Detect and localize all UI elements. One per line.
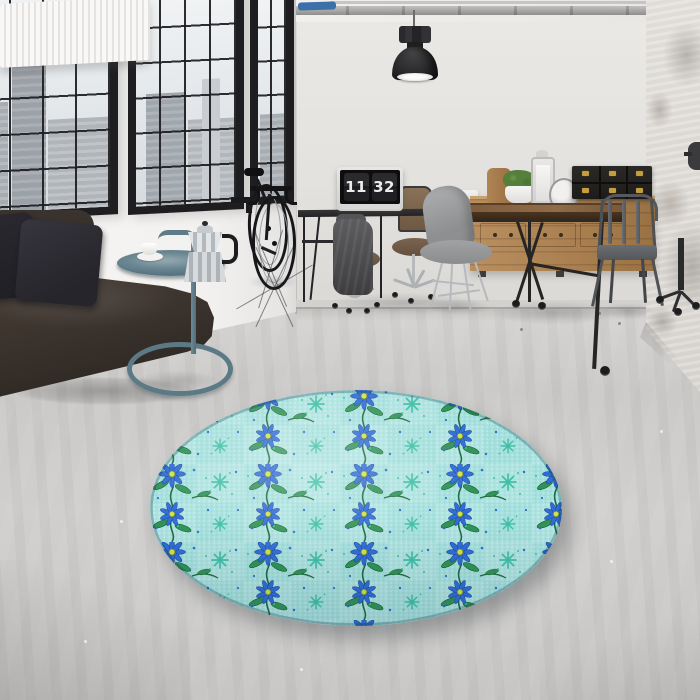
moka-pot-knob — [202, 221, 208, 226]
caster-wheel — [332, 303, 338, 309]
drawer-knob — [509, 233, 513, 237]
dining-table-edge — [456, 212, 622, 219]
bike-front-wheel — [252, 196, 296, 290]
chair-shadow — [586, 300, 668, 322]
brass-clasp — [609, 171, 616, 176]
office-chair-pole — [678, 238, 684, 290]
floor-speck — [300, 668, 303, 671]
desk-leg — [380, 214, 382, 298]
caster-wheel — [374, 302, 380, 308]
lantern-glass — [536, 165, 550, 201]
caster-wheel — [364, 308, 370, 314]
chair-shadow — [414, 296, 502, 318]
table-caster — [600, 366, 610, 376]
brass-clasp — [636, 188, 643, 193]
brass-clasp — [582, 188, 589, 193]
desk-leg — [303, 214, 305, 302]
metal-chair-slat — [608, 200, 612, 244]
side-table-loop-base — [127, 342, 233, 396]
ceiling-pipe-thin — [330, 1, 700, 4]
shell-chair-seat — [420, 240, 492, 264]
metal-chair-slat — [622, 200, 626, 244]
rug-pattern — [150, 390, 562, 626]
floor-speck — [660, 430, 663, 433]
brass-clasp — [636, 171, 643, 176]
bike-drop-bar — [285, 188, 297, 205]
sofa-pillow — [15, 219, 104, 308]
caster-wheel — [656, 296, 664, 304]
drawer-knob — [593, 233, 597, 237]
wall-lamp-arm — [684, 152, 692, 156]
metal-chair-seat — [597, 245, 657, 260]
table-caster — [538, 302, 546, 310]
drawer-knob — [543, 233, 547, 237]
draped-coat — [333, 219, 373, 295]
flip-clock-minutes: 32 — [372, 173, 397, 201]
window-muntins — [258, 0, 286, 197]
monitor-screen: 11 32 — [340, 170, 400, 204]
moka-pot-base — [184, 252, 226, 282]
lamp-fixture — [399, 26, 431, 43]
monitor-chin — [340, 204, 400, 209]
moka-pot-lid — [197, 225, 213, 233]
moka-pot-handle — [222, 234, 238, 264]
floor-speck — [84, 640, 87, 643]
trunk-divider — [599, 166, 601, 199]
pipe-valve — [298, 1, 336, 10]
caster-wheel — [346, 308, 352, 314]
metal-chair-slat — [636, 200, 640, 244]
ceiling-pipe — [290, 6, 700, 15]
caster-wheel — [674, 308, 682, 316]
coffee-cup — [142, 243, 157, 255]
lamp-rim — [397, 73, 433, 81]
radiator — [0, 0, 150, 68]
floor-speck — [120, 520, 123, 523]
flip-clock-hours: 11 — [344, 173, 369, 201]
monitor: 11 32 — [337, 167, 403, 211]
drawer-knob — [493, 233, 497, 237]
wall-lamp — [688, 142, 700, 170]
caster-wheel — [392, 292, 398, 298]
brass-clasp — [582, 171, 589, 176]
bike-saddle — [244, 168, 264, 176]
dining-table-band — [456, 219, 622, 222]
sideboard-foot — [556, 271, 564, 277]
caster-wheel — [692, 302, 700, 310]
drawer-knob — [559, 233, 563, 237]
loft-room-photo: 11 32 — [0, 0, 700, 700]
trunk-divider — [572, 182, 652, 184]
table-caster — [512, 300, 520, 308]
caster-wheel — [408, 298, 414, 304]
round-rug — [148, 386, 565, 632]
wheel-hub — [272, 241, 277, 246]
brass-clasp — [609, 188, 616, 193]
window-muntins — [136, 0, 236, 207]
floor-speck — [610, 560, 613, 563]
